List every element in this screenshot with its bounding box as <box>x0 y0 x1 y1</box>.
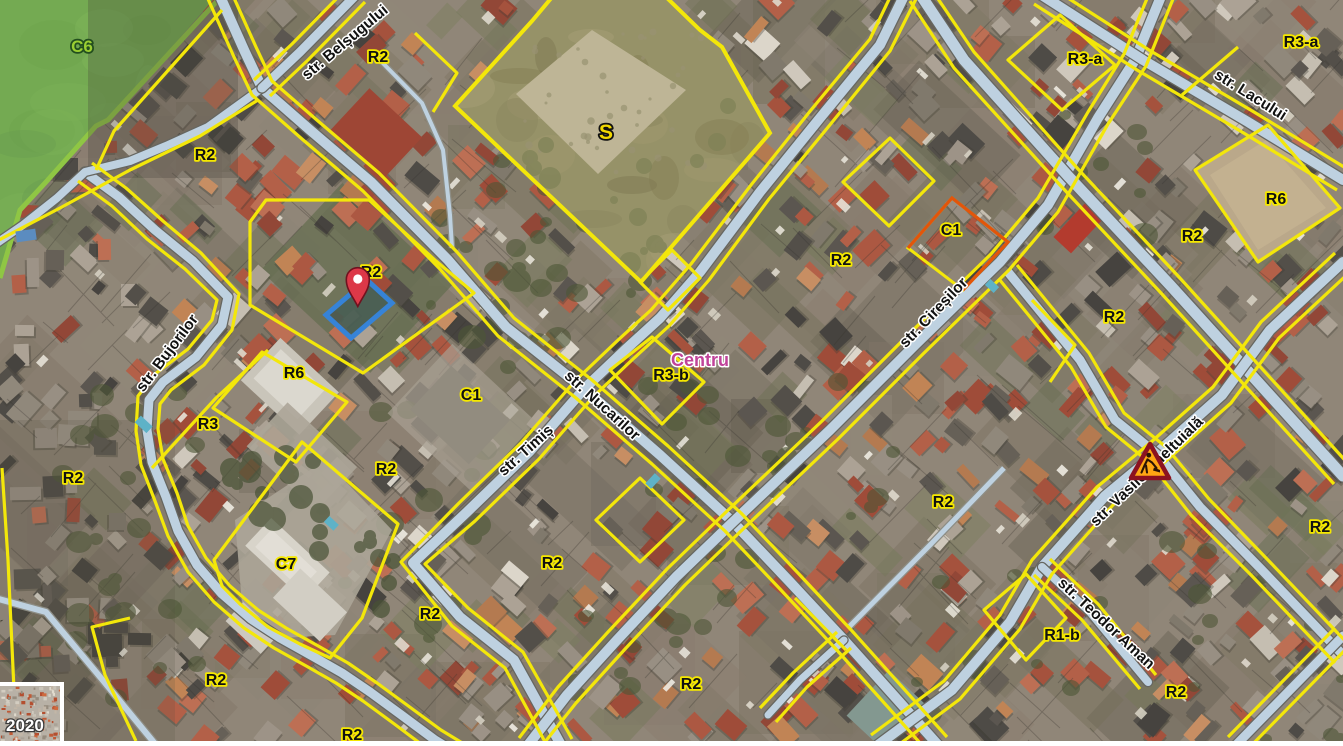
svg-text:C7: C7 <box>276 556 297 573</box>
svg-text:C1: C1 <box>461 387 482 404</box>
svg-text:2020: 2020 <box>6 716 44 735</box>
svg-text:R2: R2 <box>206 672 227 689</box>
svg-text:R3-a: R3-a <box>1068 51 1103 68</box>
svg-text:R6: R6 <box>284 365 305 382</box>
svg-text:R2: R2 <box>1166 684 1187 701</box>
svg-text:R2: R2 <box>1104 309 1125 326</box>
svg-text:R2: R2 <box>63 470 84 487</box>
svg-text:R2: R2 <box>542 555 563 572</box>
svg-text:R3: R3 <box>198 416 219 433</box>
svg-text:C6: C6 <box>71 37 93 56</box>
svg-text:R2: R2 <box>1310 519 1331 536</box>
svg-text:R6: R6 <box>1266 191 1287 208</box>
svg-text:S: S <box>599 121 613 144</box>
svg-text:R2: R2 <box>342 727 363 741</box>
svg-text:R2: R2 <box>420 606 441 623</box>
svg-text:R2: R2 <box>933 494 954 511</box>
svg-text:R2: R2 <box>681 676 702 693</box>
svg-text:R2: R2 <box>831 252 852 269</box>
svg-text:R2: R2 <box>1182 228 1203 245</box>
svg-text:R2: R2 <box>376 461 397 478</box>
svg-text:Centru: Centru <box>671 350 729 370</box>
svg-text:R3-a: R3-a <box>1284 34 1319 51</box>
svg-text:R2: R2 <box>368 49 389 66</box>
svg-text:R2: R2 <box>195 147 216 164</box>
svg-text:R1-b: R1-b <box>1044 627 1080 644</box>
svg-text:C1: C1 <box>941 222 962 239</box>
